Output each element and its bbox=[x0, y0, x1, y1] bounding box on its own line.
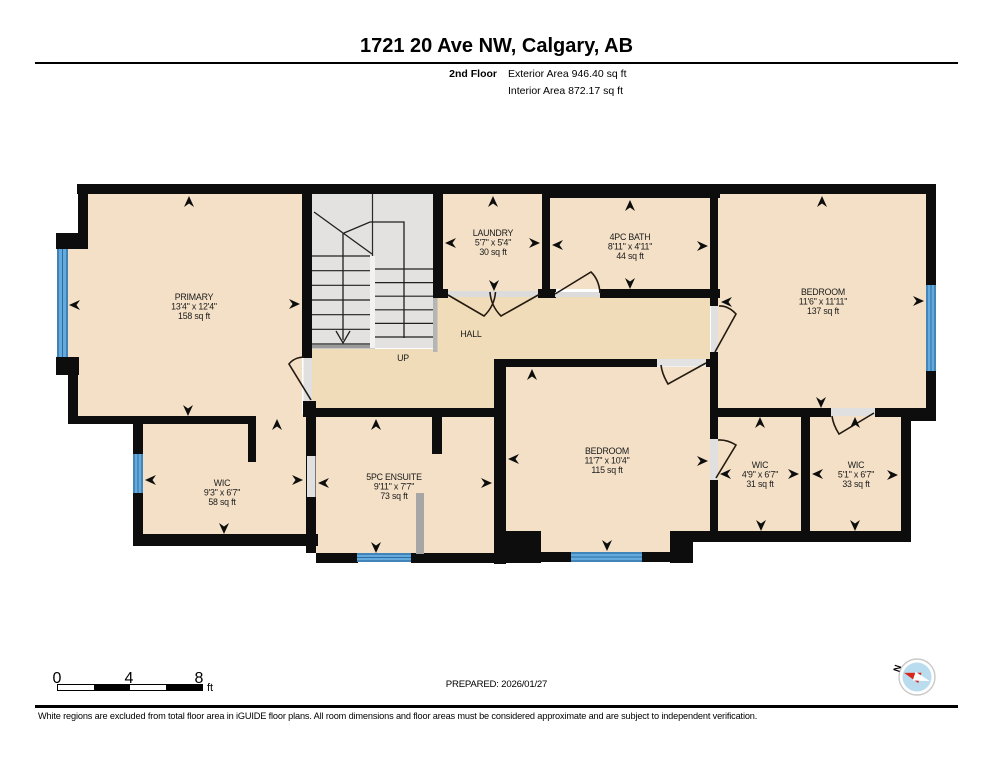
svg-text:44 sq ft: 44 sq ft bbox=[616, 251, 644, 261]
svg-text:BEDROOM: BEDROOM bbox=[801, 287, 845, 297]
svg-text:73 sq ft: 73 sq ft bbox=[380, 491, 408, 501]
svg-text:31 sq ft: 31 sq ft bbox=[746, 479, 774, 489]
svg-text:5PC ENSUITE: 5PC ENSUITE bbox=[366, 472, 422, 482]
svg-text:5'7" x 5'4": 5'7" x 5'4" bbox=[475, 238, 511, 248]
svg-text:33 sq ft: 33 sq ft bbox=[842, 479, 870, 489]
svg-text:158 sq ft: 158 sq ft bbox=[178, 311, 211, 321]
svg-text:HALL: HALL bbox=[460, 329, 482, 339]
svg-text:8'11" x 4'11": 8'11" x 4'11" bbox=[608, 242, 652, 252]
svg-text:9'11" x 7'7": 9'11" x 7'7" bbox=[374, 482, 414, 492]
svg-text:N: N bbox=[892, 663, 905, 673]
svg-text:UP: UP bbox=[397, 353, 409, 363]
svg-text:11'7" x 10'4": 11'7" x 10'4" bbox=[585, 456, 630, 466]
svg-text:PRIMARY: PRIMARY bbox=[175, 292, 214, 302]
svg-text:WIC: WIC bbox=[214, 478, 231, 488]
svg-text:58 sq ft: 58 sq ft bbox=[208, 497, 236, 507]
svg-text:4'9" x 6'7": 4'9" x 6'7" bbox=[742, 470, 778, 480]
svg-text:WIC: WIC bbox=[848, 460, 865, 470]
svg-text:30 sq ft: 30 sq ft bbox=[479, 247, 507, 257]
svg-text:BEDROOM: BEDROOM bbox=[585, 446, 629, 456]
svg-text:9'3" x 6'7": 9'3" x 6'7" bbox=[204, 488, 240, 498]
svg-text:11'6" x 11'11": 11'6" x 11'11" bbox=[799, 297, 847, 307]
svg-text:13'4" x 12'4": 13'4" x 12'4" bbox=[171, 302, 217, 312]
svg-text:WIC: WIC bbox=[752, 460, 769, 470]
svg-text:4PC BATH: 4PC BATH bbox=[610, 232, 651, 242]
svg-text:LAUNDRY: LAUNDRY bbox=[473, 228, 514, 238]
svg-text:115 sq ft: 115 sq ft bbox=[591, 465, 623, 475]
svg-text:137 sq ft: 137 sq ft bbox=[807, 306, 840, 316]
svg-text:5'1" x 6'7": 5'1" x 6'7" bbox=[838, 470, 874, 480]
